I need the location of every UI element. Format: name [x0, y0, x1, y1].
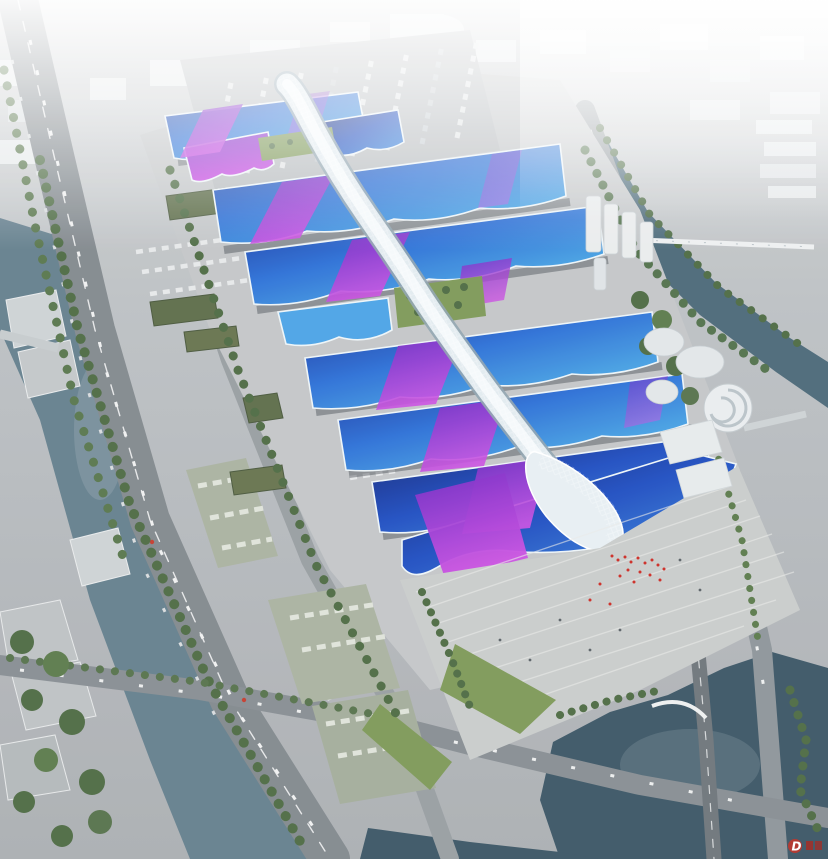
watermark-glyph-block [815, 841, 822, 850]
global-haze [0, 0, 828, 859]
watermark-glyph-block [806, 841, 813, 850]
aerial-rendering-scene: D [0, 0, 828, 859]
watermark-letter: D [792, 840, 802, 854]
scene-canvas: D [0, 0, 828, 859]
